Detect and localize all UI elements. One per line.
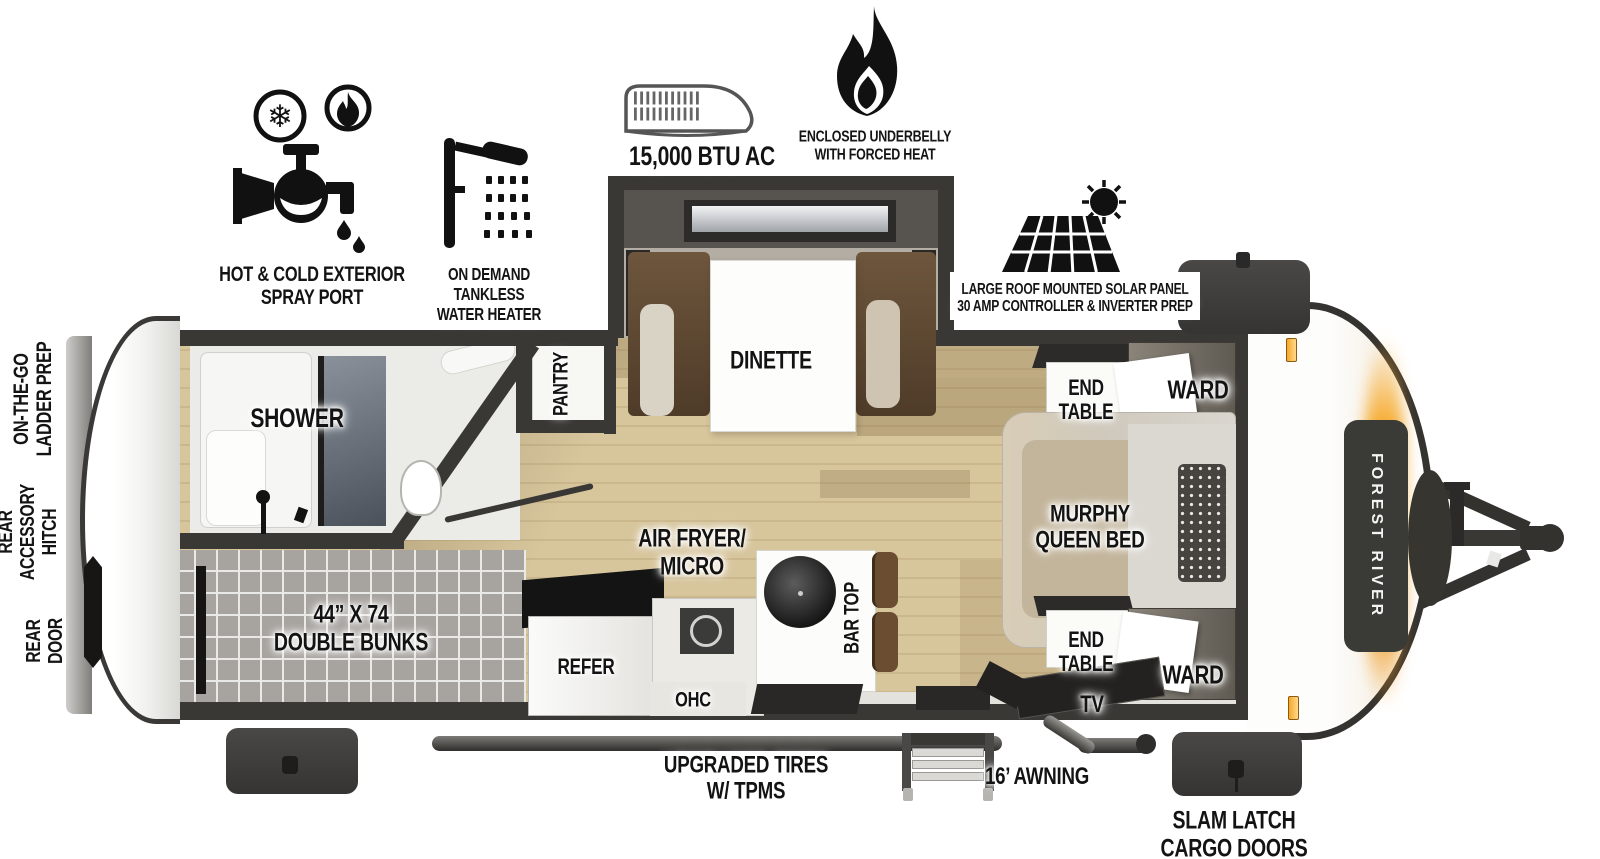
- bar-stool: [872, 612, 898, 672]
- awning-end-cap: [1136, 734, 1156, 754]
- label-refer: REFER: [558, 655, 615, 679]
- slide-rear-window-pane: [692, 206, 888, 232]
- label-murphy-bed: MURPHY QUEEN BED: [1035, 502, 1144, 555]
- label-cargo-doors: SLAM LATCH CARGO DOORS: [1161, 808, 1308, 859]
- tongue-cover: [1408, 470, 1452, 606]
- label-rear-hitch: REAR ACCESSORY HITCH: [0, 484, 61, 580]
- shower-door: [318, 356, 386, 526]
- pantry-wall-right: [604, 332, 616, 434]
- shower-bench: [206, 430, 266, 526]
- cooktop-burner: [690, 615, 722, 647]
- solar-panel-sun-icon: [1000, 178, 1140, 288]
- marker-light: [1286, 338, 1297, 362]
- label-ward-bottom: WARD: [1162, 661, 1223, 690]
- bar-stool: [872, 552, 898, 608]
- label-solar: LARGE ROOF MOUNTED SOLAR PANEL 30 AMP CO…: [957, 281, 1192, 315]
- faucet-hot-cold-icon: ❄: [228, 76, 398, 266]
- pantry-wall-bottom: [516, 420, 616, 433]
- top-wall-rear: [160, 330, 618, 346]
- brand-name: FOREST RIVER: [1367, 453, 1385, 619]
- label-ohc: OHC: [675, 688, 711, 711]
- brand-badge: FOREST RIVER: [1344, 420, 1408, 652]
- entry-mat: [751, 684, 863, 714]
- label-tires: UPGRADED TIRES W/ TPMS: [664, 753, 828, 806]
- marker-light: [1288, 696, 1299, 720]
- bunk-rail: [196, 566, 206, 694]
- label-bar-top: BAR TOP: [840, 582, 863, 654]
- label-ward-top: WARD: [1167, 376, 1228, 405]
- bathroom-wall-bottom: [172, 533, 404, 549]
- cargo-latch: [1228, 760, 1244, 778]
- rear-door-handle: [84, 556, 102, 668]
- toilet: [400, 460, 442, 516]
- floor-shade-band: [820, 470, 970, 498]
- label-water-heater: ON DEMAND TANKLESS WATER HEATER: [437, 264, 541, 324]
- label-dinette: DINETTE: [730, 347, 812, 375]
- label-shower: SHOWER: [250, 404, 343, 434]
- label-awning: 16’ AWNING: [985, 764, 1089, 790]
- dinette-cushion-right: [866, 300, 900, 408]
- label-bunks: 44” X 74 DOUBLE BUNKS: [274, 602, 428, 657]
- floorplan-canvas: FOREST RIVER ❄: [0, 0, 1600, 859]
- label-pantry: PANTRY: [549, 352, 572, 416]
- label-ladder-prep: ON-THE-GO LADDER PREP: [10, 342, 56, 457]
- front-wall: [1236, 332, 1248, 720]
- cargo-latch: [282, 756, 298, 774]
- slide-wall-top: [608, 176, 954, 190]
- shower-wand-stem: [261, 502, 266, 534]
- label-underbelly: ENCLOSED UNDERBELLY WITH FORCED HEAT: [799, 128, 952, 163]
- label-ac: 15,000 BTU AC: [629, 142, 775, 172]
- dinette-cushion-left: [640, 304, 674, 416]
- flame-icon: [828, 4, 912, 122]
- spray-dots: [484, 176, 532, 238]
- cargo-latch: [1236, 252, 1250, 268]
- label-end-table-bottom: END TABLE: [1059, 628, 1114, 676]
- slide-wall-left: [608, 176, 624, 338]
- label-end-table-top: END TABLE: [1059, 376, 1114, 424]
- shower-head-icon: [430, 134, 550, 254]
- label-spray-port: HOT & COLD EXTERIOR SPRAY PORT: [219, 263, 405, 309]
- label-air-fryer: AIR FRYER/ MICRO: [638, 526, 745, 581]
- snowflake-icon: ❄: [267, 99, 293, 134]
- label-rear-door: REAR DOOR: [23, 618, 67, 664]
- bar-sink-drain: [798, 591, 803, 596]
- rooftop-ac-icon: [614, 74, 764, 140]
- murphy-mattress-panel: [1178, 464, 1226, 582]
- label-tv: TV: [1080, 692, 1103, 718]
- cargo-latch-stem: [1235, 778, 1238, 792]
